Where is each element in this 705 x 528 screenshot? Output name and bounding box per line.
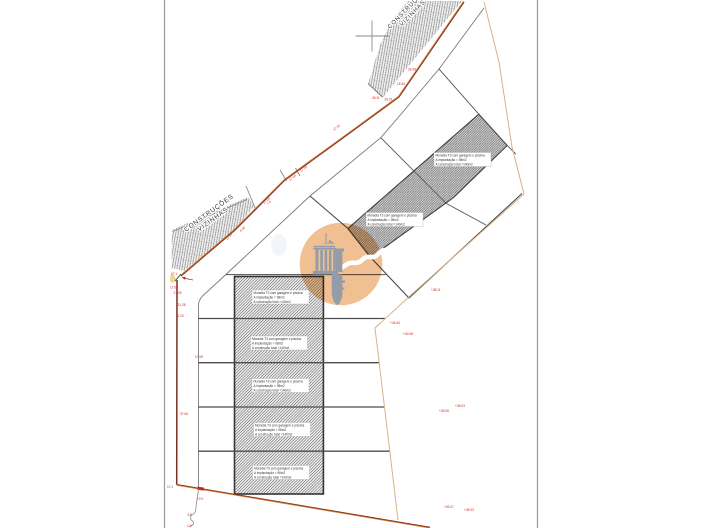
svg-text:A construção total =140m2: A construção total =140m2	[255, 432, 293, 436]
svg-text:A implantação = 98m2: A implantação = 98m2	[368, 218, 399, 222]
svg-text:A construção total =140m2: A construção total =140m2	[254, 475, 292, 479]
svg-text:17.08: 17.08	[170, 286, 178, 290]
svg-text:A construção total =140m2: A construção total =140m2	[254, 300, 292, 304]
svg-text:+40.08: +40.08	[403, 332, 413, 336]
svg-text:0.8: 0.8	[188, 513, 193, 517]
svg-text:A implantação = 98m2: A implantação = 98m2	[254, 384, 285, 388]
svg-text:Moradia T3 com garagem e pisci: Moradia T3 com garagem e piscina	[254, 380, 303, 384]
svg-text:+38.11: +38.11	[431, 288, 441, 292]
svg-text:A construção total =140m2: A construção total =140m2	[368, 222, 406, 226]
svg-text:Moradia T3 com garagem e pisci: Moradia T3 com garagem e piscina	[252, 337, 301, 341]
svg-text:Moradia T3 com garagem e pisci: Moradia T3 com garagem e piscina	[255, 424, 304, 428]
svg-text:07.1: 07.1	[171, 272, 177, 276]
svg-text:+45.03: +45.03	[455, 404, 465, 408]
svg-text:Moradia T3 com garagem e pisci: Moradia T3 com garagem e piscina	[368, 214, 417, 218]
svg-text:A implantação = 98m2: A implantação = 98m2	[436, 158, 467, 162]
svg-text:A implantação = 98m2: A implantação = 98m2	[255, 428, 286, 432]
svg-text:A implantação = 98m2: A implantação = 98m2	[254, 296, 285, 300]
svg-text:Moradia T3 com garagem e pisci: Moradia T3 com garagem e piscina	[436, 154, 485, 158]
svg-text:Moradia T3 com garagem e pisci: Moradia T3 com garagem e piscina	[254, 467, 303, 471]
svg-text:37.06: 37.06	[180, 412, 188, 416]
svg-text:17.1: 17.1	[167, 485, 173, 489]
svg-text:26.11: 26.11	[372, 96, 380, 100]
svg-text:26.08: 26.08	[408, 68, 416, 72]
svg-text:+39.06: +39.06	[439, 409, 449, 413]
svg-text:Moradia T3 com garagem e pisci: Moradia T3 com garagem e piscina	[254, 291, 303, 295]
svg-text:A implantação = 98m2: A implantação = 98m2	[254, 471, 285, 475]
svg-text:A construção total =140m2: A construção total =140m2	[436, 162, 474, 166]
svg-text:16.40: 16.40	[397, 82, 405, 86]
svg-text:A construção total =140m2: A construção total =140m2	[252, 346, 290, 350]
svg-text:17.08: 17.08	[195, 355, 203, 359]
svg-text:+45.03: +45.03	[464, 508, 474, 512]
svg-text:26.01: 26.01	[385, 98, 393, 102]
svg-text:1.0: 1.0	[187, 524, 192, 528]
svg-text:+43.47: +43.47	[444, 505, 454, 509]
svg-text:A implantação = 98m2: A implantação = 98m2	[252, 342, 283, 346]
svg-text:A construção total =140m2: A construção total =140m2	[254, 388, 292, 392]
svg-text:2.10: 2.10	[178, 314, 184, 318]
svg-text:17.09: 17.09	[174, 291, 182, 295]
svg-text:21.28: 21.28	[178, 303, 186, 307]
svg-text:+44.64: +44.64	[390, 321, 400, 325]
svg-text:+2.0: +2.0	[197, 497, 204, 501]
